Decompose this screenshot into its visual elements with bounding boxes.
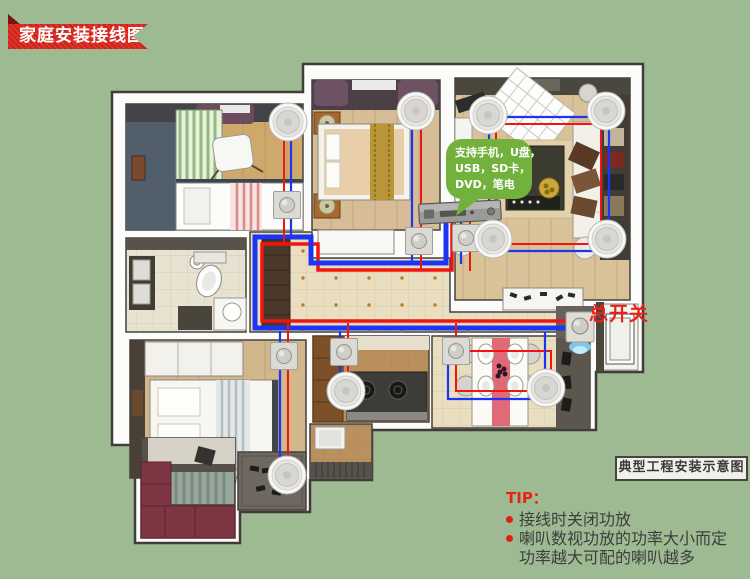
volume-control-kids — [274, 192, 301, 219]
wash-basin — [214, 298, 246, 330]
ceiling-speaker-living-bl — [474, 220, 512, 258]
entry-alcove — [596, 302, 638, 372]
room-balcony — [141, 438, 235, 538]
ceiling-speaker-master — [397, 92, 435, 130]
master-bed — [318, 124, 410, 200]
diagram-stage: 家庭安装接线图 支持手机，U盘， USB，SD卡， DVD，笔电 总开关 典型工… — [0, 0, 750, 579]
wardrobe-2 — [145, 342, 243, 376]
volume-control-kitchen — [331, 339, 358, 366]
corridor-storage — [262, 240, 290, 330]
main-switch — [566, 312, 594, 354]
railing — [310, 462, 372, 478]
floor-plan-illustration — [0, 0, 750, 579]
dresser — [318, 230, 394, 254]
ceiling-speaker-bedroom2 — [268, 456, 306, 494]
ceiling-speaker-kids — [269, 103, 307, 141]
sofa — [568, 122, 605, 238]
ceiling-speaker-dining — [527, 369, 565, 407]
coffee-table — [506, 146, 564, 210]
volume-control-bedroom2 — [271, 343, 298, 370]
laundry-sink — [315, 427, 345, 449]
ceiling-speaker-living-br — [588, 220, 626, 258]
room-laundry-balcony — [310, 424, 372, 478]
volume-control-master — [406, 228, 433, 255]
ceiling-speaker-living-tr — [587, 92, 625, 130]
ceiling-speaker-living-tl — [469, 96, 507, 134]
ceiling-speaker-kitchen — [327, 372, 365, 410]
room-bathroom — [126, 238, 246, 332]
volume-control-dining — [443, 338, 470, 365]
